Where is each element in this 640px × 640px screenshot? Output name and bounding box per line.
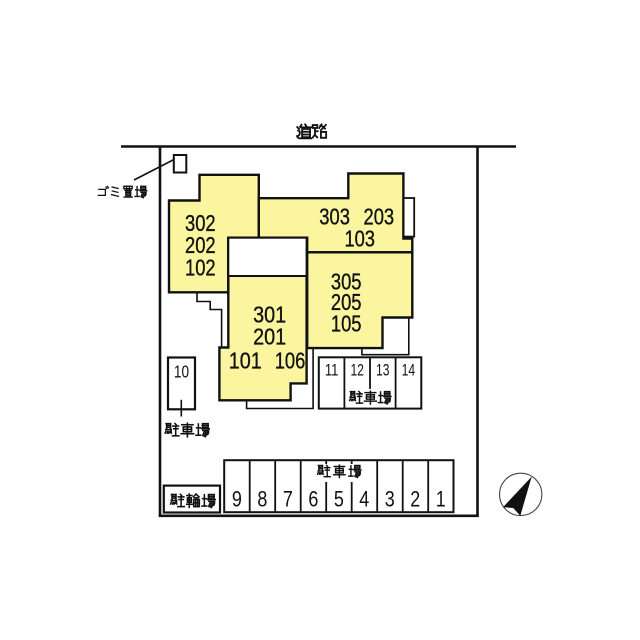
svg-text:101: 101	[229, 347, 262, 373]
svg-text:14: 14	[402, 360, 416, 379]
svg-text:13: 13	[376, 360, 390, 379]
svg-text:6: 6	[308, 487, 318, 512]
svg-text:4: 4	[359, 487, 369, 512]
svg-text:3: 3	[385, 487, 395, 512]
svg-text:11: 11	[325, 360, 339, 379]
svg-text:102: 102	[185, 255, 216, 281]
svg-text:9: 9	[232, 487, 242, 512]
svg-text:105: 105	[331, 311, 362, 337]
svg-text:2: 2	[410, 487, 420, 512]
svg-text:201: 201	[253, 324, 286, 350]
svg-text:10: 10	[174, 361, 189, 381]
svg-text:12: 12	[350, 360, 364, 379]
svg-text:106: 106	[275, 347, 306, 373]
svg-text:103: 103	[344, 225, 375, 251]
svg-text:7: 7	[283, 487, 293, 512]
svg-text:1: 1	[436, 487, 446, 512]
svg-text:8: 8	[257, 487, 267, 512]
svg-text:5: 5	[334, 487, 344, 512]
